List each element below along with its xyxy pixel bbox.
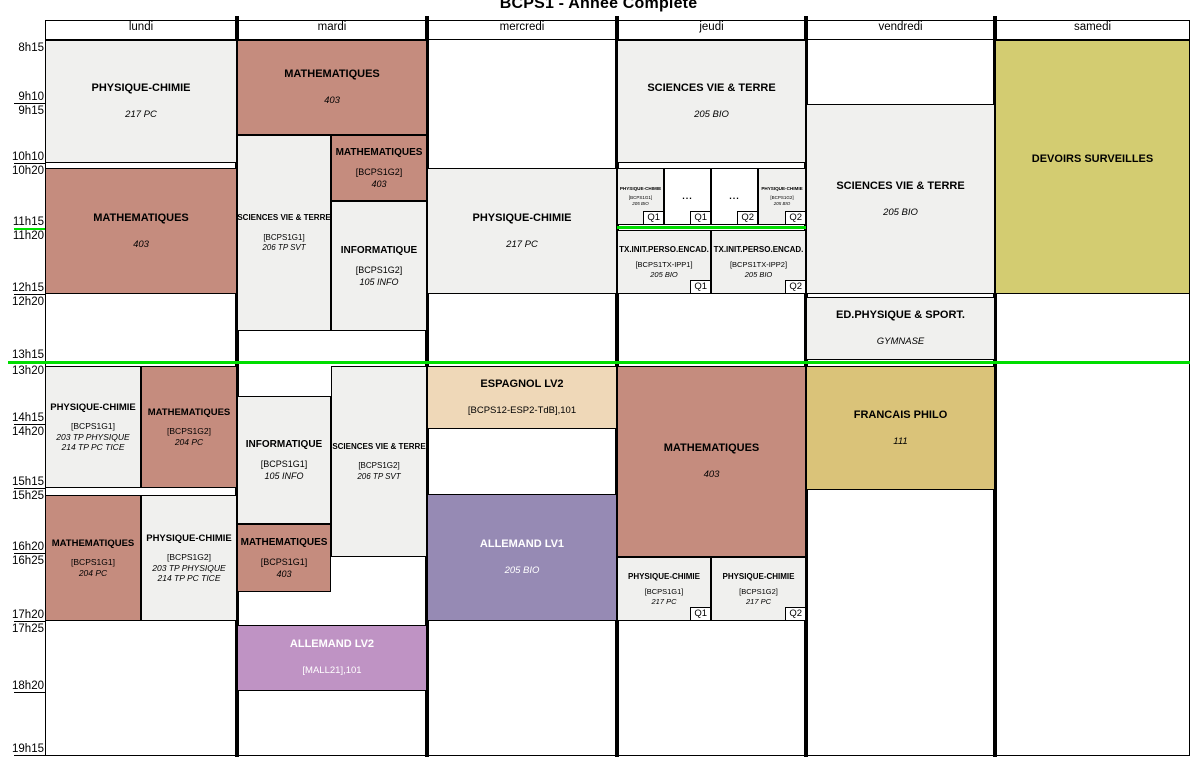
course-title: ALLEMAND LV1 xyxy=(480,538,564,551)
course-room: 217 PC xyxy=(506,239,538,250)
time-label: 8h15 xyxy=(2,42,44,54)
time-tick xyxy=(14,755,45,756)
time-tick xyxy=(14,294,45,295)
course-group: [BCPS1G2] xyxy=(167,552,211,562)
time-label: 11h20 xyxy=(2,230,44,242)
course-title: SCIENCES VIE & TERRE xyxy=(647,82,775,95)
course-title: ED.PHYSIQUE & SPORT. xyxy=(836,309,965,322)
day-header-mercredi: mercredi xyxy=(427,21,617,37)
course-room: 403 xyxy=(324,95,340,106)
week-separator-line xyxy=(8,361,1190,364)
course-cell[interactable]: ALLEMAND LV1205 BIO xyxy=(427,494,617,621)
course-room: 203 TP PHYSIQUE xyxy=(152,563,225,573)
course-cell[interactable]: PHYSIQUE-CHIMIE[BCPS1G2]203 TP PHYSIQUE2… xyxy=(141,495,237,621)
course-group: [BCPS1TX-IPP2] xyxy=(730,260,787,269)
course-room: 205 BIO xyxy=(650,270,678,279)
course-room: 205 BIO xyxy=(505,565,540,576)
course-cell[interactable]: PHYSIQUE-CHIMIE[BCPS1G1]205 BIOQ1 xyxy=(617,168,664,225)
course-title: MATHEMATIQUES xyxy=(664,442,760,455)
course-cell[interactable]: SCIENCES VIE & TERRE205 BIO xyxy=(617,40,806,163)
course-title: PHYSIQUE-CHIMIE xyxy=(722,572,794,582)
course-cell[interactable]: PHYSIQUE-CHIMIE217 PC xyxy=(427,168,617,294)
course-room: 205 BIO xyxy=(883,207,918,218)
course-room: 403 xyxy=(704,469,720,480)
quarter-badge: Q1 xyxy=(643,211,664,225)
day-header-samedi: samedi xyxy=(995,21,1190,37)
course-group: [BCPS1G2] xyxy=(356,167,403,178)
course-title: PHYSIQUE-CHIMIE xyxy=(761,186,802,192)
course-cell[interactable]: TX.INIT.PERSO.ENCAD.[BCPS1TX-IPP2]205 BI… xyxy=(711,230,806,294)
time-label: 14h20 xyxy=(2,426,44,438)
course-title: INFORMATIQUE xyxy=(341,245,417,257)
course-room: 204 PC xyxy=(79,568,107,578)
course-group: [BCPS1TX-IPP1] xyxy=(635,260,692,269)
course-room: 403 xyxy=(276,569,291,580)
course-group: [BCPS1G2] xyxy=(167,426,211,436)
course-title: TX.INIT.PERSO.ENCAD. xyxy=(619,245,709,255)
course-group: [BCPS1G1] xyxy=(261,459,308,470)
course-cell[interactable]: MATHEMATIQUES403 xyxy=(45,168,237,294)
course-group: [BCPS1G2] xyxy=(356,265,403,276)
course-title: ESPAGNOL LV2 xyxy=(480,378,563,391)
course-cell[interactable]: SCIENCES VIE & TERRE[BCPS1G1]206 TP SVT xyxy=(237,135,331,331)
course-room: 214 TP PC TICE xyxy=(158,573,221,583)
course-room: 217 PC xyxy=(651,597,676,606)
time-label: 9h10 xyxy=(2,91,44,103)
time-tick xyxy=(14,692,45,693)
course-group: [MALL21],101 xyxy=(302,665,361,676)
course-group: [BCPS1G1] xyxy=(263,233,304,243)
course-room: 403 xyxy=(133,239,149,250)
time-tick xyxy=(14,103,45,104)
course-cell[interactable]: MATHEMATIQUES[BCPS1G2]204 PC xyxy=(141,366,237,488)
course-cell[interactable]: ESPAGNOL LV2[BCPS12-ESP2-TdB],101 xyxy=(427,366,617,429)
course-cell[interactable]: ...Q1 xyxy=(664,168,711,225)
course-room: 214 TP PC TICE xyxy=(62,442,125,452)
course-group: [BCPS1G1] xyxy=(629,195,652,200)
course-group: [BCPS1G1] xyxy=(71,421,115,431)
quarter-badge: Q1 xyxy=(690,607,711,621)
course-cell[interactable]: SCIENCES VIE & TERRE205 BIO xyxy=(806,104,995,294)
time-tick xyxy=(14,424,45,425)
time-label: 17h20 xyxy=(2,609,44,621)
course-room: 403 xyxy=(371,179,386,190)
course-title: INFORMATIQUE xyxy=(246,439,322,451)
course-title: PHYSIQUE-CHIMIE xyxy=(628,572,700,582)
day-header-mardi: mardi xyxy=(237,21,427,37)
course-title: PHYSIQUE-CHIMIE xyxy=(91,82,190,95)
timetable: BCPS1 - Année Complète lundimardimercred… xyxy=(0,0,1197,765)
course-cell[interactable]: PHYSIQUE-CHIMIE[BCPS1G2]217 PCQ2 xyxy=(711,557,806,621)
course-cell[interactable]: TX.INIT.PERSO.ENCAD.[BCPS1TX-IPP1]205 BI… xyxy=(617,230,711,294)
course-cell[interactable]: MATHEMATIQUES[BCPS1G2]403 xyxy=(331,135,427,201)
course-room: 217 PC xyxy=(746,597,771,606)
course-cell[interactable]: PHYSIQUE-CHIMIE[BCPS1G1]203 TP PHYSIQUE2… xyxy=(45,366,141,488)
time-label: 17h25 xyxy=(2,623,44,635)
course-title: TX.INIT.PERSO.ENCAD. xyxy=(714,245,804,255)
course-cell[interactable]: MATHEMATIQUES[BCPS1G1]204 PC xyxy=(45,495,141,621)
course-cell[interactable]: MATHEMATIQUES403 xyxy=(237,40,427,135)
quarter-badge: Q2 xyxy=(785,211,806,225)
course-title: MATHEMATIQUES xyxy=(52,538,135,549)
time-label: 14h15 xyxy=(2,412,44,424)
quarter-badge: Q1 xyxy=(690,280,711,294)
course-cell[interactable]: ALLEMAND LV2[MALL21],101 xyxy=(237,625,427,691)
time-label: 19h15 xyxy=(2,743,44,755)
course-cell[interactable]: INFORMATIQUE[BCPS1G1]105 INFO xyxy=(237,396,331,524)
course-room: 203 TP PHYSIQUE xyxy=(56,432,129,442)
time-tick xyxy=(14,621,45,622)
course-room: GYMNASE xyxy=(877,336,925,347)
course-group: [BCPS1G2] xyxy=(739,587,778,596)
course-group: [BCPS1G1] xyxy=(645,587,684,596)
course-title: MATHEMATIQUES xyxy=(93,212,189,225)
course-room: 205 BIO xyxy=(632,201,649,206)
time-label: 11h15 xyxy=(2,216,44,228)
course-cell[interactable]: SCIENCES VIE & TERRE[BCPS1G2]206 TP SVT xyxy=(331,366,427,557)
course-room: 206 TP SVT xyxy=(357,472,400,482)
day-header-lundi: lundi xyxy=(45,21,237,37)
course-group: [BCPS12-ESP2-TdB],101 xyxy=(468,405,576,416)
time-label: 15h15 xyxy=(2,476,44,488)
time-label: 18h20 xyxy=(2,680,44,692)
time-label: 15h25 xyxy=(2,490,44,502)
course-title: MATHEMATIQUES xyxy=(241,537,328,549)
course-cell[interactable]: MATHEMATIQUES[BCPS1G1]403 xyxy=(237,524,331,592)
course-room: 217 PC xyxy=(125,109,157,120)
course-cell[interactable]: PHYSIQUE-CHIMIE[BCPS1G2]205 BIOQ2 xyxy=(758,168,806,225)
time-label: 10h10 xyxy=(2,151,44,163)
time-label: 10h20 xyxy=(2,165,44,177)
course-title: PHYSIQUE-CHIMIE xyxy=(472,212,571,225)
course-title: PHYSIQUE-CHIMIE xyxy=(50,402,136,413)
course-group: [BCPS1G2] xyxy=(770,195,793,200)
course-cell[interactable]: FRANCAIS PHILO111 xyxy=(806,366,995,490)
course-group: [BCPS1G1] xyxy=(71,557,115,567)
course-room: 205 BIO xyxy=(774,201,791,206)
time-label: 12h20 xyxy=(2,296,44,308)
course-cell[interactable]: ED.PHYSIQUE & SPORT.GYMNASE xyxy=(806,297,995,360)
course-title: ... xyxy=(682,191,693,202)
time-label: 16h20 xyxy=(2,541,44,553)
quarter-badge: Q2 xyxy=(737,211,758,225)
course-room: 206 TP SVT xyxy=(262,243,305,253)
course-title: ... xyxy=(729,191,740,202)
course-cell[interactable]: ...Q2 xyxy=(711,168,758,225)
course-room: 105 INFO xyxy=(264,471,303,482)
time-label: 13h20 xyxy=(2,365,44,377)
week-separator-line xyxy=(617,226,806,229)
course-title: MATHEMATIQUES xyxy=(148,407,231,418)
quarter-badge: Q2 xyxy=(785,280,806,294)
course-title: SCIENCES VIE & TERRE xyxy=(836,180,964,193)
time-tick xyxy=(14,163,45,164)
course-cell[interactable]: DEVOIRS SURVEILLES xyxy=(995,40,1190,294)
time-tick xyxy=(14,488,45,489)
time-tick xyxy=(14,553,45,554)
course-title: ALLEMAND LV2 xyxy=(290,638,374,651)
course-title: SCIENCES VIE & TERRE xyxy=(237,213,330,223)
course-title: PHYSIQUE-CHIMIE xyxy=(620,186,661,192)
course-title: DEVOIRS SURVEILLES xyxy=(1032,153,1153,166)
course-group: [BCPS1G2] xyxy=(358,461,399,471)
quarter-badge: Q1 xyxy=(690,211,711,225)
time-label: 12h15 xyxy=(2,282,44,294)
course-room: 204 PC xyxy=(175,437,203,447)
course-title: MATHEMATIQUES xyxy=(336,147,423,159)
course-cell[interactable]: MATHEMATIQUES403 xyxy=(617,366,806,557)
day-header-jeudi: jeudi xyxy=(617,21,806,37)
course-cell[interactable]: INFORMATIQUE[BCPS1G2]105 INFO xyxy=(331,201,427,331)
course-title: MATHEMATIQUES xyxy=(284,68,380,81)
course-cell[interactable]: PHYSIQUE-CHIMIE[BCPS1G1]217 PCQ1 xyxy=(617,557,711,621)
course-group: [BCPS1G1] xyxy=(261,557,308,568)
course-cell[interactable]: PHYSIQUE-CHIMIE217 PC xyxy=(45,40,237,163)
course-title: FRANCAIS PHILO xyxy=(854,409,948,422)
course-room: 205 BIO xyxy=(745,270,773,279)
day-header-vendredi: vendredi xyxy=(806,21,995,37)
page-title: BCPS1 - Année Complète xyxy=(0,0,1197,13)
time-label: 9h15 xyxy=(2,105,44,117)
time-label: 16h25 xyxy=(2,555,44,567)
quarter-badge: Q2 xyxy=(785,607,806,621)
course-room: 205 BIO xyxy=(694,109,729,120)
course-title: PHYSIQUE-CHIMIE xyxy=(146,533,232,544)
time-label: 13h15 xyxy=(2,349,44,361)
course-room: 105 INFO xyxy=(359,277,398,288)
course-room: 111 xyxy=(893,436,907,447)
course-title: SCIENCES VIE & TERRE xyxy=(332,442,425,452)
